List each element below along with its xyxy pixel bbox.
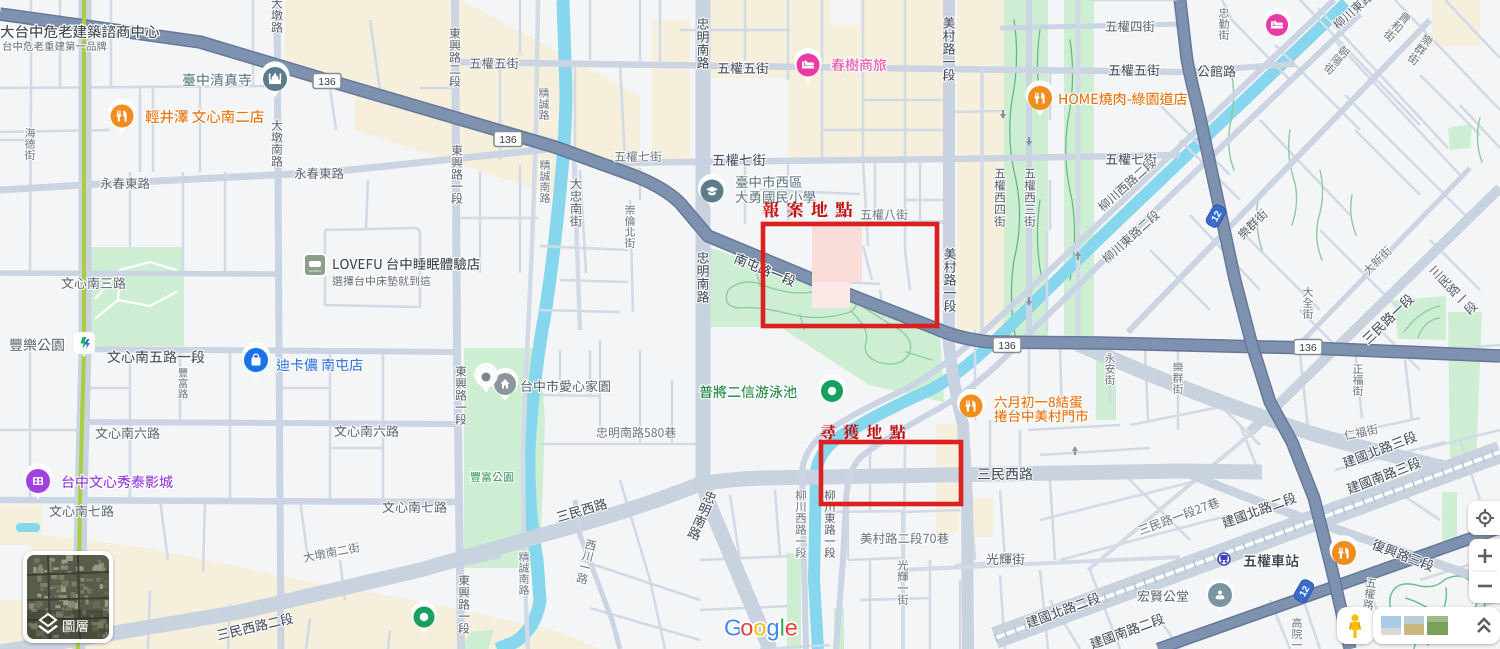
svg-text:136: 136 <box>998 340 1016 352</box>
svg-text:136: 136 <box>499 134 517 146</box>
svg-text:o: o <box>740 615 753 641</box>
svg-text:o: o <box>753 615 766 641</box>
svg-text:e: e <box>785 615 798 641</box>
svg-text:g: g <box>767 615 780 641</box>
svg-text:136: 136 <box>1299 342 1317 354</box>
svg-text:LOVEFU: LOVEFU <box>309 269 321 273</box>
svg-text:136: 136 <box>318 76 336 88</box>
